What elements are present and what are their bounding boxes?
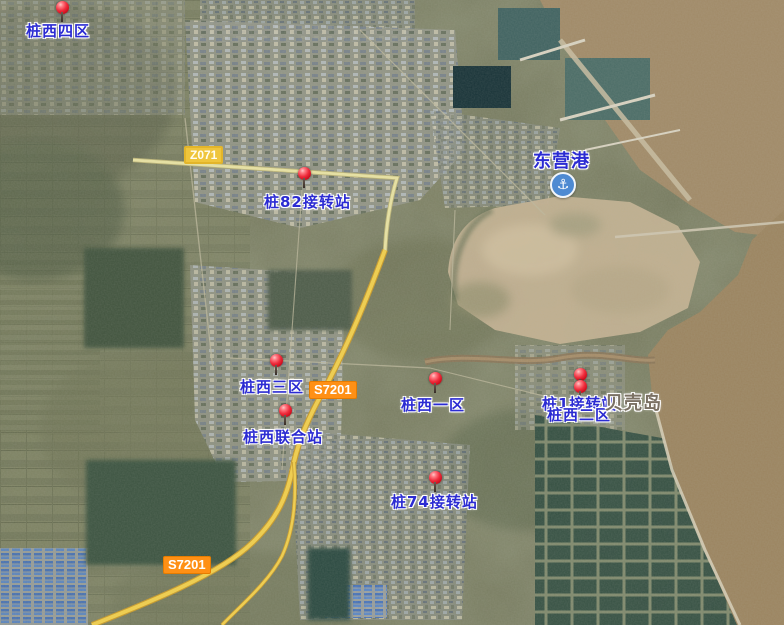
place-label-shell-island: 贝壳岛 (605, 389, 662, 415)
map-label-zhuangxi-yiqu[interactable]: 桩西一区 (401, 394, 465, 415)
road-shield-s7201-mid: S7201 (309, 381, 357, 399)
map-pin-zhuangxi-erqu[interactable] (574, 380, 587, 393)
map-label-zhuangxi-erqu[interactable]: 桩西二区 (547, 404, 611, 425)
map-overlay-layer: 桩西四区桩82接转站桩西三区桩西一区桩1接转站桩西二区桩西联合站桩74接转站东营… (0, 0, 784, 625)
map-pin-zhuang74-station[interactable] (429, 471, 442, 484)
map-label-zhuang74-station[interactable]: 桩74接转站 (391, 491, 478, 512)
map-label-zhuangxi-lianhezhan[interactable]: 桩西联合站 (243, 426, 323, 447)
map-pin-zhuangxi-siqu[interactable] (56, 1, 69, 14)
anchor-icon: ⚓ (550, 172, 576, 198)
map-pin-zhuangxi-sanqu[interactable] (270, 354, 283, 367)
road-shield-z071: Z071 (184, 146, 223, 164)
map-canvas[interactable]: 桩西四区桩82接转站桩西三区桩西一区桩1接转站桩西二区桩西联合站桩74接转站东营… (0, 0, 784, 625)
map-label-zhuang82-station[interactable]: 桩82接转站 (264, 191, 351, 212)
map-label-zhuangxi-sanqu[interactable]: 桩西三区 (240, 376, 304, 397)
map-pin-zhuangxi-lianhezhan[interactable] (279, 404, 292, 417)
road-shield-s7201-sw: S7201 (163, 556, 211, 574)
map-pin-zhuang82-station[interactable] (298, 167, 311, 180)
map-pin-zhuangxi-yiqu[interactable] (429, 372, 442, 385)
place-label-dongying-port: 东营港 (533, 147, 590, 173)
map-label-zhuangxi-siqu[interactable]: 桩西四区 (26, 20, 90, 41)
